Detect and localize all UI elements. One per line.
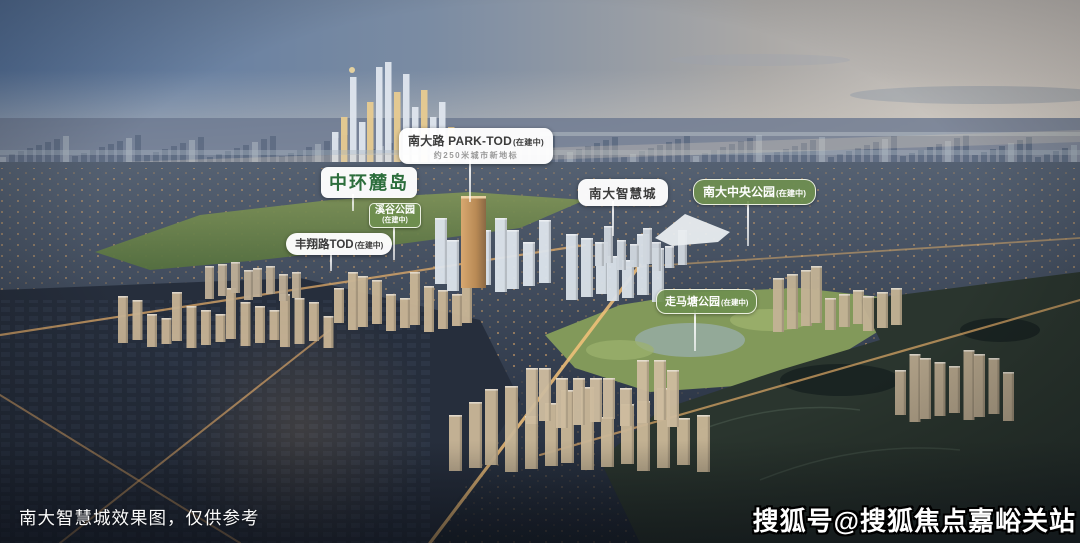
xigu-park-title: 溪谷公园: [375, 205, 415, 216]
label-nanda-central-park: 南大中央公园(在建中): [693, 179, 816, 205]
xigu-park-status: (在建中): [375, 217, 415, 225]
nanda-central-park-title: 南大中央公园: [703, 185, 775, 199]
nanda-central-park-status: (在建中): [776, 189, 806, 198]
connector-line-zoumatang-park: [694, 310, 696, 351]
connector-line-xigu-park: [393, 226, 395, 260]
aerial-scene-svg: [0, 0, 1080, 543]
render-disclaimer-caption: 南大智慧城效果图，仅供参考: [19, 505, 260, 530]
connector-line-park-tod: [469, 160, 471, 202]
zoumatang-park-title: 走马塘公园: [665, 296, 720, 308]
label-nanda-smart-city: 南大智慧城: [578, 179, 668, 206]
label-zhonghuan-ludao: 中环麓岛: [321, 167, 417, 198]
fengxiang-tod-title: 丰翔路TOD: [295, 239, 354, 251]
park-tod-subtitle: 约250米城市新地标: [408, 150, 544, 161]
zhonghuan-ludao-title: 中环麓岛: [329, 173, 409, 193]
nanda-smart-city-title: 南大智慧城: [589, 187, 657, 201]
label-zoumatang-park: 走马塘公园(在建中): [656, 289, 757, 314]
connector-line-central-park: [747, 201, 749, 246]
park-tod-title: 南大路 PARK-TOD: [408, 134, 512, 148]
label-xigu-park: 溪谷公园 (在建中): [369, 203, 421, 228]
aerial-render-image: 南大路 PARK-TOD(在建中) 约250米城市新地标 中环麓岛 溪谷公园 (…: [0, 0, 1080, 543]
label-nandalu-park-tod: 南大路 PARK-TOD(在建中) 约250米城市新地标: [399, 128, 553, 164]
park-tod-title-row: 南大路 PARK-TOD(在建中): [408, 132, 544, 149]
fengxiang-tod-status: (在建中): [355, 241, 384, 250]
connector-line-fengxiang-tod: [330, 254, 332, 271]
park-tod-status: (在建中): [513, 138, 544, 147]
zoumatang-park-status: (在建中): [721, 298, 748, 307]
label-fengxiang-tod: 丰翔路TOD(在建中): [286, 233, 392, 255]
connector-line-smart-city: [612, 201, 614, 236]
sohu-watermark: 搜狐号@搜狐焦点嘉峪关站: [753, 501, 1076, 538]
